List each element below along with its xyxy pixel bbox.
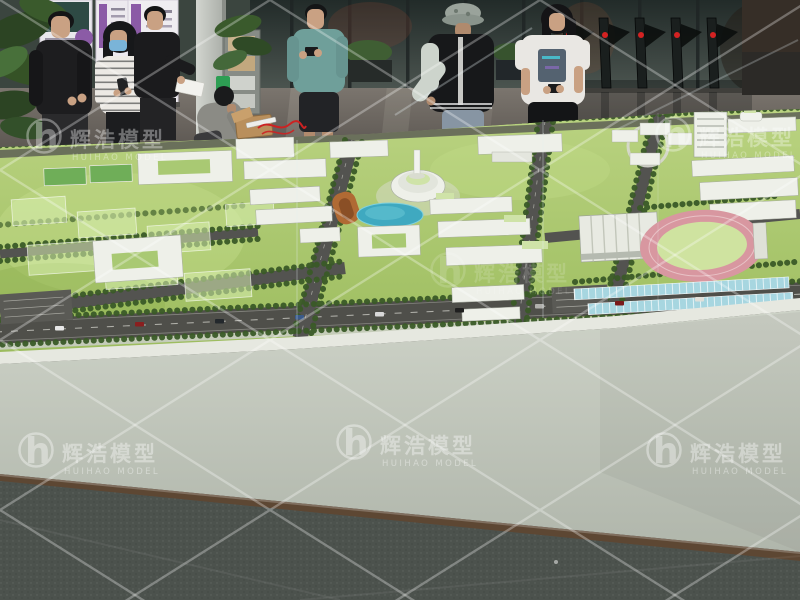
- photo-scene: h 辉浩模型 HUIHAO MODEL h 辉浩模型 HUIHAO MODEL …: [0, 0, 800, 600]
- watermark-cn: 辉浩模型: [690, 442, 786, 466]
- watermark-cn: 辉浩模型: [380, 434, 476, 458]
- watermark-logo: h: [653, 431, 679, 472]
- watermark-logo: h: [33, 117, 59, 158]
- watermark-cn: 辉浩模型: [474, 262, 570, 286]
- watermark-cn: 辉浩模型: [70, 128, 166, 152]
- watermark-en: HUIHAO MODEL: [692, 467, 788, 477]
- watermark-x-pattern: [0, 0, 800, 600]
- watermark-en: HUIHAO MODEL: [476, 287, 572, 297]
- watermark-logo: h: [437, 251, 463, 292]
- watermark-logo: h: [662, 115, 688, 156]
- watermark-en: HUIHAO MODEL: [72, 153, 168, 163]
- scene-canvas: h 辉浩模型 HUIHAO MODEL h 辉浩模型 HUIHAO MODEL …: [0, 0, 800, 600]
- watermark-logo: h: [343, 423, 369, 464]
- watermark-en: HUIHAO MODEL: [701, 151, 797, 161]
- watermark-logo: h: [25, 431, 51, 472]
- watermark-cn: 辉浩模型: [699, 126, 795, 150]
- watermark-cn: 辉浩模型: [62, 442, 158, 466]
- watermark-en: HUIHAO MODEL: [64, 467, 160, 477]
- watermark-en: HUIHAO MODEL: [382, 459, 478, 469]
